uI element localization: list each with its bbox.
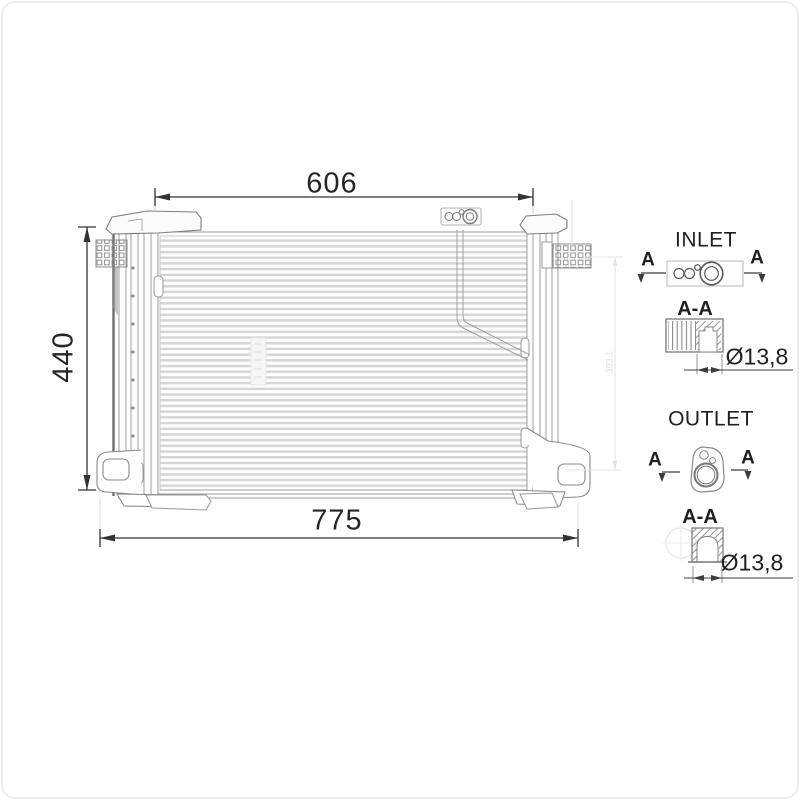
- dim-775-label: 775: [311, 507, 362, 536]
- inlet-diameter-label: Ø13,8: [726, 346, 789, 369]
- inlet-section-label: A-A: [677, 299, 713, 319]
- outlet-section-view: [663, 525, 727, 562]
- outlet-marker-a-left: A: [648, 451, 662, 470]
- faint-side-dimension: [568, 200, 622, 470]
- drawing-canvas: 606 440 775 393,1 INLET A A A-A Ø13,8 OU…: [0, 0, 800, 800]
- left-mesh-bracket: [96, 240, 127, 267]
- side-dim-faint-label: 393,1: [606, 351, 615, 374]
- core-fins: [160, 236, 527, 490]
- condenser-line-art: [0, 0, 800, 800]
- dimension-440: [78, 227, 96, 490]
- right-mesh-bracket: [553, 244, 591, 268]
- inlet-marker-a-left: A: [641, 251, 655, 270]
- top-fitting: [441, 208, 481, 225]
- dim-606-label: 606: [306, 170, 357, 199]
- outlet-diameter-label: Ø13,8: [721, 552, 784, 575]
- inlet-section-view: [666, 319, 723, 352]
- inlet-title: INLET: [675, 230, 737, 251]
- outlet-section-label: A-A: [682, 507, 718, 527]
- center-stamp: [251, 338, 266, 385]
- outlet-marker-a-right: A: [741, 449, 755, 468]
- dim-440-label: 440: [50, 331, 79, 382]
- condenser-body: [96, 200, 622, 510]
- outlet-title: OUTLET: [668, 409, 754, 430]
- left-tank-top-cap: [106, 211, 201, 234]
- right-tank-top-cap: [520, 214, 567, 234]
- inlet-marker-a-right: A: [750, 249, 764, 268]
